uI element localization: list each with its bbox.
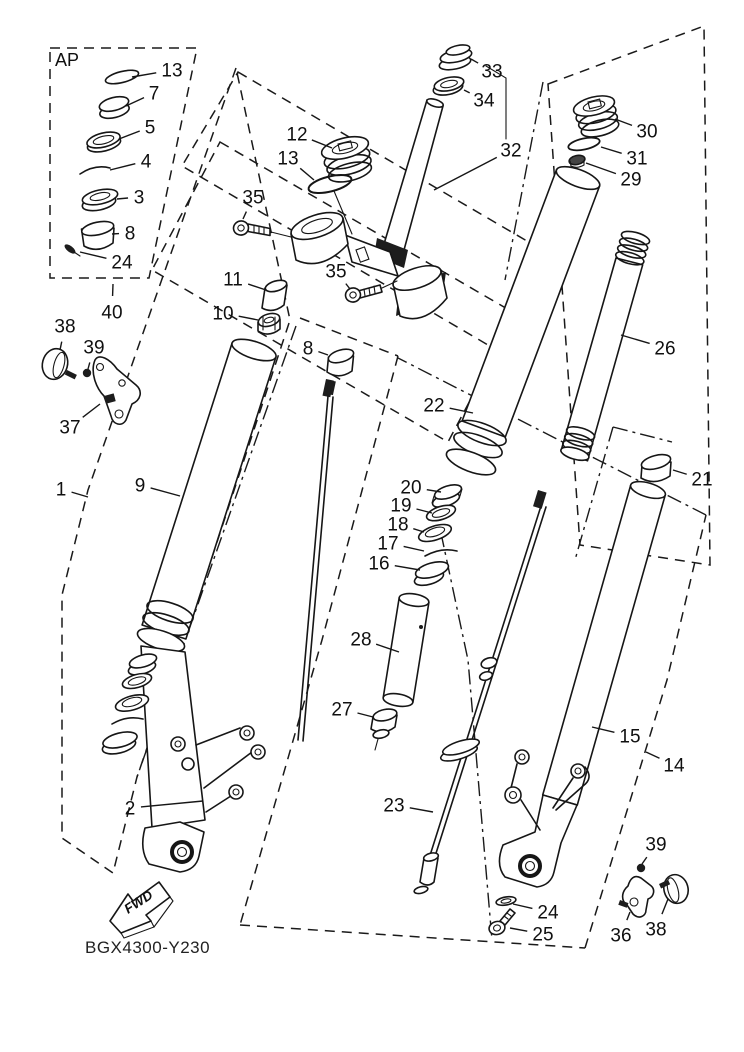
leader-1	[72, 492, 88, 497]
leader-29	[586, 163, 616, 174]
callout-29: 29	[620, 170, 641, 191]
leader-24	[80, 252, 106, 258]
callout-24: 24	[537, 903, 559, 924]
bushing21-chain-top	[613, 427, 672, 442]
center-group-left-edge	[240, 356, 398, 925]
leader-34	[464, 90, 470, 93]
leader-5	[119, 131, 140, 139]
part-ap-3-oil-seal	[81, 186, 119, 213]
leader-35	[346, 284, 350, 289]
callout-22: 22	[423, 396, 444, 417]
callout-5: 5	[145, 118, 156, 139]
leader-24	[513, 904, 532, 908]
callout-12: 12	[286, 125, 307, 146]
callout-21: 21	[691, 470, 712, 491]
reflector-assembly-right	[618, 864, 691, 917]
leader-38	[662, 899, 668, 914]
part-2-lower-leg	[141, 646, 265, 872]
part-ap-5-seal	[85, 129, 122, 155]
callout-8: 8	[303, 339, 314, 360]
leader-11	[248, 284, 266, 290]
leader-9	[151, 488, 180, 496]
leader-3	[117, 198, 128, 199]
callout-31: 31	[626, 149, 647, 170]
leader-27	[357, 713, 373, 717]
part-32-steering-stem	[374, 97, 444, 268]
ap-label: AP	[55, 50, 79, 70]
leader-31	[601, 147, 622, 153]
part-10-nut	[257, 311, 281, 334]
part-ap-4-clip	[80, 167, 110, 174]
part-38b-reflector	[659, 872, 691, 906]
part-35-bolt-upper	[232, 219, 291, 237]
leader-32	[434, 157, 497, 190]
leader-39	[642, 857, 647, 864]
callout-25: 25	[532, 925, 553, 946]
part-38-reflector	[39, 346, 77, 382]
callout-7: 7	[149, 84, 160, 105]
callout-38: 38	[54, 317, 75, 338]
leader-39	[88, 362, 90, 369]
callout-24: 24	[111, 253, 133, 274]
leader-38	[60, 342, 62, 350]
part-37-bracket	[93, 357, 140, 424]
callout-9: 9	[135, 476, 146, 497]
callout-23: 23	[383, 796, 404, 817]
callout-32: 32	[500, 141, 521, 162]
callout-13: 13	[277, 149, 298, 170]
part-33-cap-nut	[438, 43, 473, 72]
callout-36: 36	[610, 926, 631, 947]
callout-40: 40	[101, 303, 122, 324]
leader-26	[621, 335, 650, 343]
part-30-cap	[571, 92, 620, 140]
part-39-nut	[83, 369, 91, 377]
part-ap-7-spring-seat	[98, 94, 131, 121]
leader-14	[646, 752, 659, 758]
callout-17: 17	[377, 534, 398, 555]
leader-37	[83, 404, 100, 417]
callout-11: 11	[223, 270, 243, 291]
callout-2: 2	[125, 799, 136, 820]
part-23-damper-rod	[413, 490, 546, 895]
callout-27: 27	[331, 700, 352, 721]
part-27-seat	[371, 707, 398, 750]
fwd-arrow: FWD	[110, 882, 173, 938]
part-4b-clip	[112, 718, 143, 724]
part-31-oring	[567, 135, 601, 152]
callout-3: 3	[134, 188, 145, 209]
callout-28: 28	[350, 630, 371, 651]
leader-4	[110, 164, 135, 170]
triple-clamp	[288, 207, 447, 318]
leader-23	[410, 808, 433, 812]
callout-14: 14	[663, 756, 685, 777]
part-24b-washer	[495, 895, 516, 906]
callout-8: 8	[125, 224, 136, 245]
leader-33	[471, 59, 478, 63]
leader-36	[627, 912, 630, 920]
callout-1: 1	[56, 480, 67, 501]
callout-38: 38	[645, 920, 666, 941]
part-25-bolt	[488, 909, 515, 936]
part-26-inner-tube	[559, 229, 650, 463]
clamp-group-box	[152, 142, 516, 442]
callout-30: 30	[636, 122, 657, 143]
callout-16: 16	[368, 554, 389, 575]
part-36-bracket	[618, 877, 653, 917]
part-15-inner-tube	[543, 478, 668, 805]
part-ap-8-bushing	[80, 219, 115, 249]
leader-16	[395, 566, 420, 570]
callout-39: 39	[83, 338, 104, 359]
leader-10	[239, 316, 258, 320]
part-ap-24-screw	[63, 243, 80, 256]
part-16-oil-seal	[413, 559, 450, 589]
part-39b-nut	[637, 864, 645, 872]
leader-13	[300, 168, 314, 180]
part-34-seal	[432, 75, 465, 98]
part-13b-oring	[307, 171, 353, 196]
callout-37: 37	[59, 418, 80, 439]
callout-4: 4	[141, 152, 152, 173]
callout-10: 10	[212, 304, 233, 325]
part-18-seal	[417, 521, 454, 545]
part-8b-bushing	[327, 347, 355, 376]
callout-35: 35	[242, 188, 263, 209]
cap-group-box	[182, 72, 556, 352]
part-29-nut	[568, 154, 586, 167]
callout-13: 13	[161, 61, 182, 82]
callout-18: 18	[387, 515, 408, 536]
leader-35	[243, 212, 246, 219]
diagram-code: BGX4300-Y230	[85, 938, 210, 957]
callout-26: 26	[654, 339, 675, 360]
parts-diagram-page: AP FWD BGX4300-Y230 13754382440383937191…	[0, 0, 744, 1052]
part-21-bushing	[640, 452, 672, 482]
part-11-collar	[262, 278, 288, 310]
callout-19: 19	[390, 496, 411, 517]
leader-25	[510, 928, 527, 931]
leader-21	[673, 470, 687, 474]
lower-leg-right	[499, 750, 589, 887]
part-35-bolt-lower	[344, 281, 397, 304]
leader-17	[404, 546, 424, 551]
rod-left-damper	[298, 379, 334, 741]
callout-34: 34	[473, 91, 495, 112]
callout-35: 35	[325, 262, 346, 283]
callout-33: 33	[481, 62, 502, 83]
leader-8	[318, 352, 328, 355]
callout-39: 39	[645, 835, 666, 856]
part-9-outer-tube	[135, 335, 279, 656]
part-17-clip	[425, 550, 457, 556]
leader-18	[413, 529, 424, 532]
part-3b-oil-seal	[101, 729, 139, 757]
part-28-spacer	[382, 592, 430, 709]
callout-15: 15	[619, 727, 640, 748]
parts-diagram: AP FWD BGX4300-Y230 13754382440383937191…	[0, 0, 744, 1052]
